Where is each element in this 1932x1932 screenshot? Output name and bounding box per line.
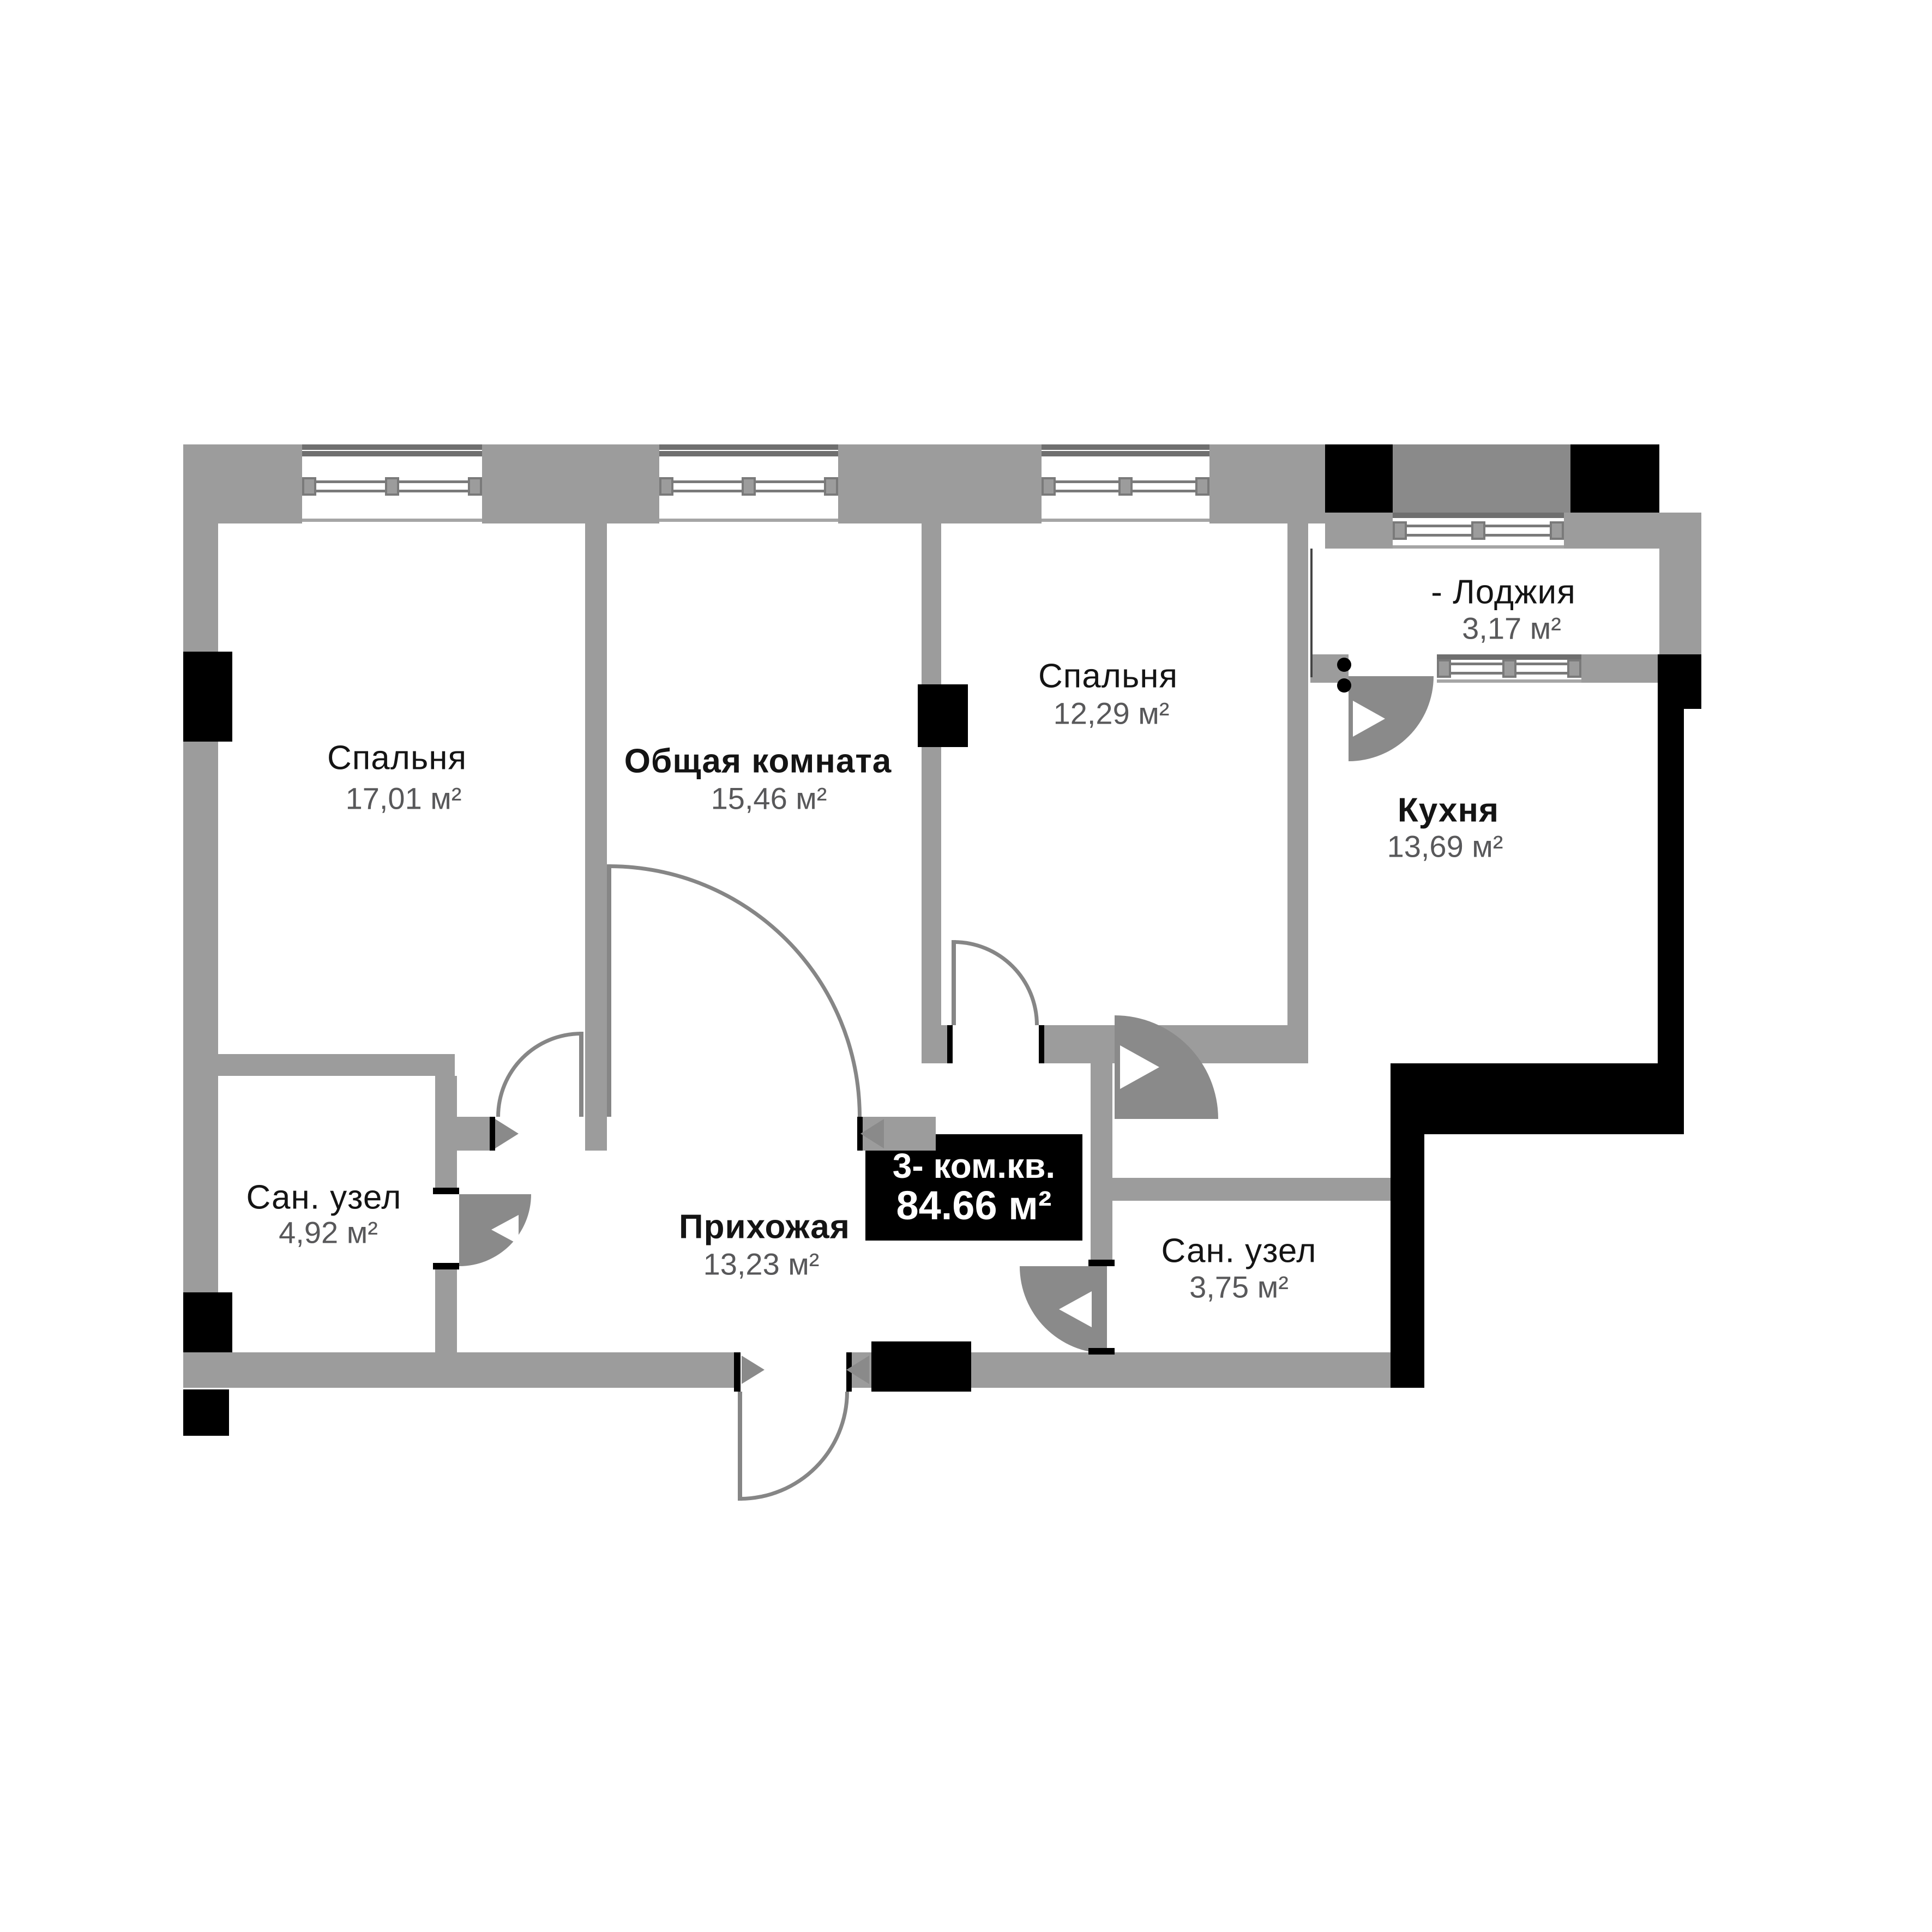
window-outer-line (1042, 451, 1209, 456)
window-inner-line (302, 519, 482, 522)
black-column (183, 652, 232, 742)
door-notch (491, 1215, 519, 1244)
room-label-loggia: - Лоджия (1431, 573, 1576, 612)
black-column (1658, 654, 1701, 709)
window-mullion (1393, 521, 1407, 540)
room-label-bedroom-2: Спальня (1038, 657, 1178, 696)
door-swing-arc (609, 864, 862, 1117)
wall-segment (183, 444, 218, 1388)
window-outer-line (659, 451, 838, 456)
wall-segment (218, 1054, 455, 1076)
wall-segment-dark (1393, 444, 1570, 513)
room-label-bathroom-1: Сан. узел (246, 1178, 402, 1217)
door-jamb-tick (1039, 1025, 1044, 1063)
door-jamb-tick (1088, 1348, 1115, 1355)
room-label-hallway: Прихожая (679, 1208, 850, 1247)
black-column (183, 1292, 232, 1352)
wall-segment (1325, 513, 1393, 549)
edge-line (1310, 549, 1313, 677)
window-mullion (659, 477, 673, 496)
window (1437, 654, 1581, 683)
window-mullion (1437, 659, 1451, 678)
black-column (1391, 1134, 1424, 1388)
door-leaf (952, 940, 956, 1025)
window-mullion (1567, 659, 1581, 678)
wall-segment (183, 1352, 734, 1388)
door-jamb-tick (433, 1263, 459, 1269)
door-leaf (738, 1392, 742, 1501)
room-area-loggia: 3,17 м² (1462, 611, 1561, 646)
window-outer-line (1393, 513, 1564, 518)
wall-segment (482, 444, 659, 523)
wall-segment (838, 444, 1042, 523)
door-notch (1059, 1291, 1092, 1327)
opening-chevron (860, 1119, 884, 1148)
room-area-kitchen: 13,69 м² (1387, 829, 1503, 864)
room-area-bedroom-1: 17,01 м² (346, 781, 462, 816)
wall-segment (1564, 513, 1701, 549)
wall-segment (1581, 654, 1659, 683)
door-swing-arc (740, 1392, 849, 1501)
door-jamb-tick (1088, 1260, 1115, 1266)
window-outer-line (302, 451, 482, 456)
opening-chevron (459, 1197, 481, 1225)
window (302, 451, 482, 522)
window-inner-line (1042, 519, 1209, 522)
window-mullion (1118, 477, 1133, 496)
door-leaf (607, 864, 611, 1117)
black-column (1570, 444, 1659, 513)
apartment-total-area: 84.66 м² (896, 1184, 1051, 1227)
window-inner-line (659, 519, 838, 522)
window (659, 451, 838, 522)
window (1393, 513, 1564, 549)
wall-segment (435, 1076, 457, 1193)
hinge-dot (1337, 678, 1351, 693)
black-column (183, 1389, 229, 1436)
room-area-hallway: 13,23 м² (703, 1247, 820, 1282)
window-mullion (742, 477, 756, 496)
opening-chevron (495, 1119, 519, 1148)
window-mullion (1195, 477, 1209, 496)
wall-segment (435, 1265, 457, 1353)
window-mullion (824, 477, 838, 496)
door-swing-arc (954, 940, 1039, 1025)
door-swing-arc (496, 1032, 581, 1117)
window-mullion (1502, 659, 1516, 678)
room-label-kitchen: Кухня (1398, 791, 1499, 830)
door-jamb-tick (433, 1188, 459, 1194)
window-mullion (468, 477, 482, 496)
black-column (1391, 1063, 1684, 1134)
hinge-dot (1337, 658, 1351, 672)
window-inner-line (1393, 545, 1564, 549)
window-inner-line (1437, 679, 1581, 683)
black-column (918, 684, 968, 747)
door-leaf (579, 1032, 583, 1117)
door-jamb-tick (734, 1352, 741, 1392)
room-area-bedroom-2: 12,29 м² (1054, 696, 1170, 731)
floor-plan: 3- ком.кв. 84.66 м² Спальня17,01 м²Общая… (0, 0, 1932, 1932)
window-mullion (385, 477, 399, 496)
window-mullion (1550, 521, 1564, 540)
window (1042, 451, 1209, 522)
room-area-bathroom-2: 3,75 м² (1189, 1269, 1289, 1305)
wall-segment (1112, 1178, 1391, 1201)
door-notch (1120, 1045, 1159, 1089)
window-mullion (1471, 521, 1485, 540)
window-mullion (302, 477, 316, 496)
room-label-bedroom-1: Спальня (327, 739, 467, 778)
wall-segment (585, 523, 607, 1151)
room-label-bathroom-2: Сан. узел (1161, 1232, 1317, 1271)
outer-wall-line (183, 444, 1325, 450)
room-area-living-room: 15,46 м² (711, 781, 827, 816)
wall-segment (1091, 1063, 1112, 1266)
door-jamb-tick (490, 1117, 495, 1151)
door-jamb-tick (947, 1025, 953, 1063)
black-column (1658, 709, 1684, 1063)
wall-segment (183, 444, 302, 523)
wall-segment (922, 523, 941, 1025)
opening-chevron (742, 1356, 765, 1384)
room-label-living-room: Общая комната (624, 742, 892, 781)
window-mullion (1042, 477, 1056, 496)
wall-segment (1287, 478, 1308, 1063)
wall-segment (1659, 549, 1701, 655)
opening-chevron (846, 1356, 869, 1384)
black-column (1325, 444, 1393, 513)
door-notch (1353, 701, 1385, 737)
wall-segment (971, 1352, 1392, 1388)
room-area-bathroom-1: 4,92 м² (279, 1215, 378, 1250)
black-column (871, 1341, 971, 1392)
wall-segment (455, 1117, 494, 1151)
apartment-type-label: 3- ком.кв. (893, 1148, 1055, 1184)
